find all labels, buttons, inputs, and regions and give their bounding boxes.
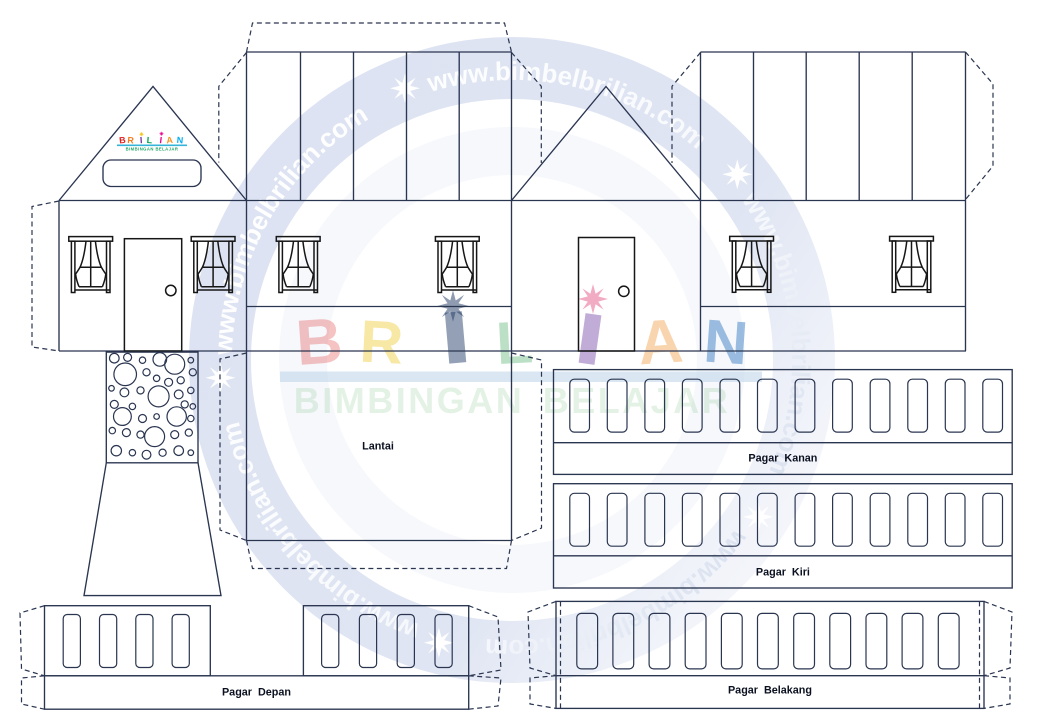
svg-text:B: B (294, 304, 345, 379)
svg-text:A: A (166, 135, 174, 146)
svg-text:Pagar Kiri: Pagar Kiri (756, 567, 810, 579)
svg-text:N: N (702, 306, 751, 377)
svg-text:I: I (140, 135, 143, 145)
svg-text:Pagar Depan: Pagar Depan (222, 687, 291, 699)
svg-text:N: N (176, 135, 183, 146)
svg-text:I: I (159, 135, 163, 145)
svg-text:Lantai: Lantai (362, 441, 394, 453)
svg-text:L: L (494, 308, 534, 377)
svg-text:BIMBINGAN BELAJAR: BIMBINGAN BELAJAR (126, 146, 179, 151)
svg-text:L: L (146, 135, 153, 145)
svg-text:A: A (636, 307, 685, 379)
svg-text:Pagar Belakang: Pagar Belakang (728, 685, 812, 697)
svg-text:R: R (358, 308, 405, 377)
svg-text:R: R (127, 135, 135, 146)
svg-text:B: B (119, 135, 127, 146)
svg-text:Pagar Kanan: Pagar Kanan (748, 453, 817, 465)
